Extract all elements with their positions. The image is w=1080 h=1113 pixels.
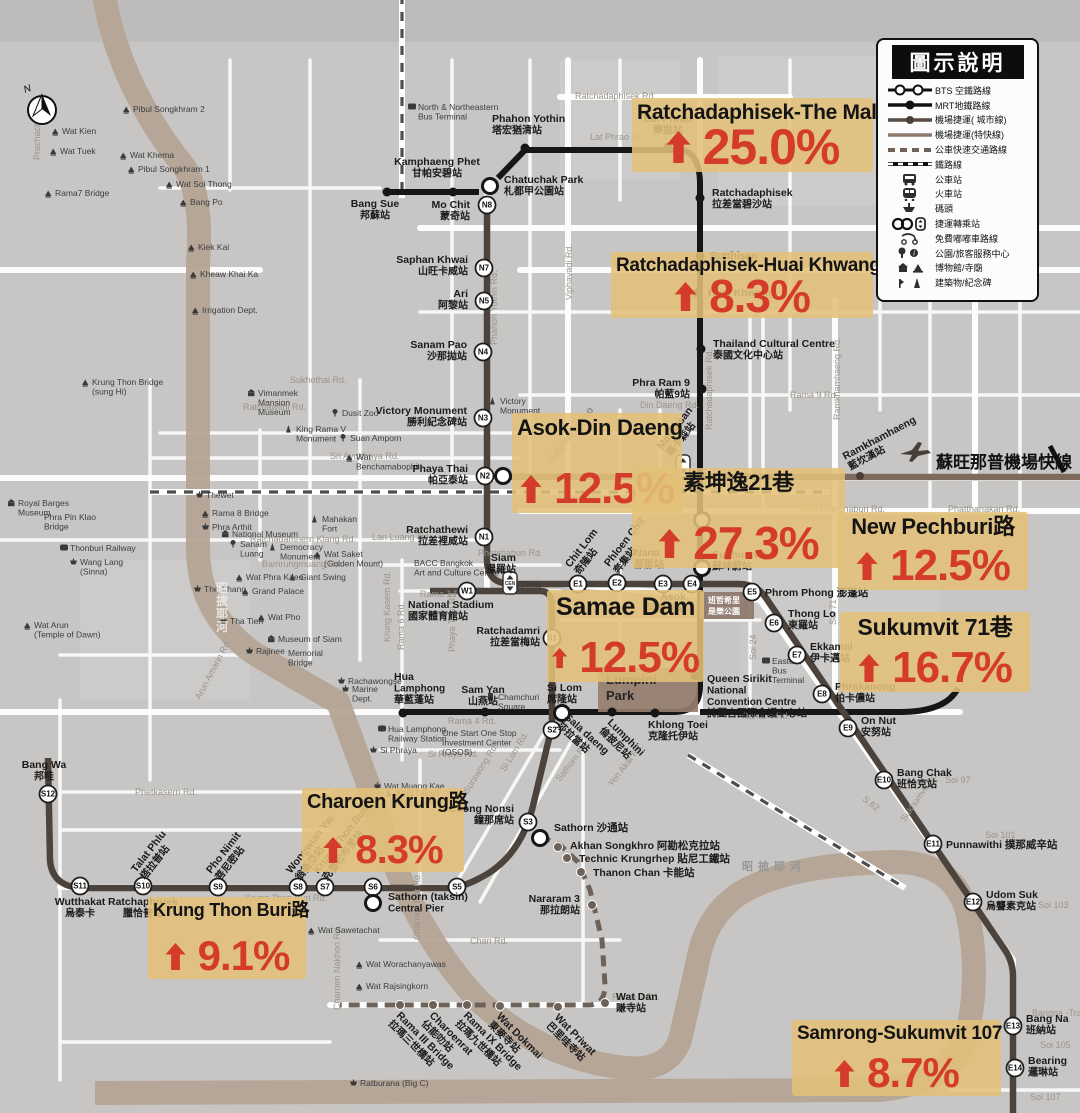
road-label: Soi 105 bbox=[1040, 1040, 1071, 1050]
svg-text:Luang: Luang bbox=[240, 549, 264, 559]
station-marker-E11: E11 bbox=[925, 836, 942, 853]
svg-text:Sukhumvit: Sukhumvit bbox=[712, 549, 766, 561]
legend-item-label: 捷運轉乘站 bbox=[935, 217, 980, 230]
station-label: Huai Khwang bbox=[708, 287, 775, 299]
bus-icon bbox=[762, 658, 770, 664]
brt-legend-icon bbox=[885, 143, 935, 157]
svg-text:鐘那席站: 鐘那席站 bbox=[474, 814, 514, 827]
svg-text:E6: E6 bbox=[769, 619, 779, 628]
station-marker-S7: S7 bbox=[317, 879, 334, 896]
station-marker-E3: E3 bbox=[655, 576, 672, 593]
svg-text:Ratchadamri: Ratchadamri bbox=[476, 625, 540, 637]
svg-text:Wat Worachanyawas: Wat Worachanyawas bbox=[366, 959, 446, 969]
svg-text:Wat Phra Kaeo: Wat Phra Kaeo bbox=[246, 572, 304, 582]
landmark: Wat Sawetachat bbox=[308, 925, 380, 935]
svg-text:Ekkamai: Ekkamai bbox=[810, 641, 853, 653]
svg-text:Huai Khwang: Huai Khwang bbox=[708, 287, 775, 299]
svg-text:N7: N7 bbox=[479, 264, 490, 273]
landmark: National Museum bbox=[222, 529, 299, 539]
road-label: Charoen Nakhon Rd. bbox=[332, 925, 342, 1010]
svg-text:Square: Square bbox=[498, 702, 526, 712]
svg-text:Wat Rajsingkorn: Wat Rajsingkorn bbox=[366, 981, 428, 991]
svg-text:Museum of Siam: Museum of Siam bbox=[278, 634, 342, 644]
legend-item-label: 建築物/紀念碑 bbox=[935, 276, 992, 289]
svg-text:班納站: 班納站 bbox=[1026, 1024, 1056, 1037]
svg-text:Rama 8 Bridge: Rama 8 Bridge bbox=[212, 508, 269, 518]
station-marker-S6: S6 bbox=[365, 879, 382, 896]
svg-text:Ratchadaphisek: Ratchadaphisek bbox=[712, 187, 793, 199]
svg-text:Punnawithi 撲那威辛站: Punnawithi 撲那威辛站 bbox=[946, 838, 1058, 851]
svg-text:Monument: Monument bbox=[296, 434, 337, 444]
svg-text:Wat Saket: Wat Saket bbox=[324, 549, 364, 559]
station-label: Thanon Chan 卡能站 bbox=[593, 866, 695, 879]
legend-item-label: MRT地鐵路線 bbox=[935, 99, 990, 112]
legend-item: 公車快速交通路線 bbox=[885, 142, 1032, 157]
legend-item: 建築物/紀念碑 bbox=[885, 275, 1032, 290]
road-label: Rama 4 Rd. bbox=[448, 716, 496, 726]
svg-text:S10: S10 bbox=[136, 882, 151, 891]
rail-legend-icon bbox=[885, 157, 935, 171]
svg-text:Kiek Kai: Kiek Kai bbox=[198, 242, 229, 252]
svg-text:Democracy: Democracy bbox=[280, 542, 324, 552]
svg-text:One Start One Stop: One Start One Stop bbox=[442, 728, 517, 738]
station-marker-E8: E8 bbox=[814, 686, 831, 703]
landmark: Grand Palace bbox=[242, 586, 304, 596]
svg-text:E5: E5 bbox=[747, 588, 757, 597]
road-label: Soi 107 bbox=[1030, 1092, 1061, 1102]
bus-legend-icon bbox=[885, 172, 935, 186]
station-marker-N3: N3 bbox=[475, 410, 492, 427]
legend-item: 機場捷運( 城市線) bbox=[885, 113, 1032, 128]
svg-text:Nararam 3: Nararam 3 bbox=[529, 893, 581, 905]
legend-item-label: 鐵路線 bbox=[935, 158, 962, 171]
airport-express-label: 蘇旺那普機場快線 bbox=[935, 452, 1072, 472]
svg-text:勝利紀念碑站: 勝利紀念碑站 bbox=[407, 416, 467, 429]
svg-text:S6: S6 bbox=[368, 883, 378, 892]
map-legend: 圖示說明 BTS 空鐵路線MRT地鐵路線機場捷運( 城市線)機場捷運(特快線)公… bbox=[876, 38, 1039, 302]
svg-text:帕亞泰站: 帕亞泰站 bbox=[428, 474, 468, 487]
svg-text:Wat Sawetachat: Wat Sawetachat bbox=[318, 925, 380, 935]
svg-text:塔宏猶清站: 塔宏猶清站 bbox=[492, 124, 542, 137]
svg-text:Thailand Cultural Centre: Thailand Cultural Centre bbox=[713, 338, 835, 350]
svg-text:Wat Tuek: Wat Tuek bbox=[60, 146, 96, 156]
svg-text:S9: S9 bbox=[213, 883, 223, 892]
svg-text:N8: N8 bbox=[482, 201, 493, 210]
legend-item: 公車站 bbox=[885, 172, 1032, 187]
legend-item-label: BTS 空鐵路線 bbox=[935, 84, 991, 97]
svg-text:Monument: Monument bbox=[396, 798, 437, 808]
station-marker bbox=[521, 144, 530, 153]
station-marker-E13: E13 bbox=[1005, 1018, 1022, 1035]
svg-text:E4: E4 bbox=[687, 580, 697, 589]
station-marker-N1: N1 bbox=[476, 529, 493, 546]
river-label: 昭 bbox=[216, 581, 228, 595]
svg-text:Khlong Toei: Khlong Toei bbox=[648, 719, 708, 731]
landmark: Wat Soi Thong bbox=[166, 179, 232, 189]
svg-text:Wat Pho: Wat Pho bbox=[268, 612, 301, 622]
svg-text:Siam: Siam bbox=[491, 552, 516, 564]
svg-text:烏泰卡: 烏泰卡 bbox=[65, 907, 95, 920]
svg-text:King Taksin: King Taksin bbox=[396, 788, 440, 798]
station-marker bbox=[429, 1001, 438, 1010]
svg-text:Lamphong: Lamphong bbox=[394, 684, 445, 695]
svg-text:Phra Ram 9: Phra Ram 9 bbox=[632, 377, 690, 389]
svg-text:札都甲公園站: 札都甲公園站 bbox=[503, 185, 564, 198]
svg-text:伊卡邁站: 伊卡邁站 bbox=[809, 652, 850, 665]
svg-text:E13: E13 bbox=[1006, 1022, 1021, 1031]
svg-text:Wat Soi Thong: Wat Soi Thong bbox=[176, 179, 232, 189]
landmark: Rama 8 Bridge bbox=[202, 508, 269, 518]
svg-text:四面佛: 四面佛 bbox=[516, 580, 542, 590]
landmark: Kheaw Khai Ka bbox=[190, 269, 258, 279]
svg-text:E10: E10 bbox=[877, 776, 892, 785]
svg-text:N3: N3 bbox=[478, 414, 489, 423]
svg-text:Si Lom: Si Lom bbox=[547, 682, 582, 694]
station-marker bbox=[563, 854, 572, 863]
svg-text:拉差裡威站: 拉差裡威站 bbox=[418, 535, 468, 548]
svg-text:(Golden Mount): (Golden Mount) bbox=[324, 559, 383, 569]
station-marker-E10: E10 bbox=[876, 772, 893, 789]
svg-text:Sathorn (taksin): Sathorn (taksin) bbox=[388, 891, 468, 903]
road-label: Viphavadi Rd. bbox=[564, 244, 574, 300]
station-marker bbox=[691, 672, 700, 681]
svg-text:暹羅站: 暹羅站 bbox=[486, 563, 516, 576]
station-marker-E2: E2 bbox=[609, 575, 626, 592]
landmark: Rama7 Bridge bbox=[45, 188, 110, 198]
station-label: Phrom Phong 澎蓬站 bbox=[765, 586, 869, 599]
park-label: 是樂公園 bbox=[707, 606, 740, 616]
svg-text:邦哇: 邦哇 bbox=[34, 770, 54, 783]
station-marker bbox=[651, 709, 660, 718]
road-label: Sukhothai Rd. bbox=[290, 375, 347, 385]
tuktuk-legend-icon bbox=[885, 231, 935, 245]
svg-text:Investment Center: Investment Center bbox=[442, 738, 512, 748]
road-label: Soi 103 bbox=[1038, 900, 1069, 910]
landmark: Ratburana (Big C) bbox=[350, 1078, 429, 1088]
svg-text:Wat Khema: Wat Khema bbox=[130, 150, 174, 160]
svg-text:Hua: Hua bbox=[394, 671, 414, 683]
svg-text:那拉朗站: 那拉朗站 bbox=[540, 904, 580, 917]
station-label: Si Lom席隆站 bbox=[547, 682, 582, 706]
svg-text:Dept.: Dept. bbox=[352, 694, 372, 704]
station-marker bbox=[676, 455, 690, 477]
station-marker bbox=[383, 188, 392, 197]
station-marker bbox=[399, 709, 408, 718]
road-label: Rama 6 Rd. bbox=[396, 602, 406, 650]
landmark: Wat Worachanyawas bbox=[356, 959, 446, 969]
svg-text:On Nut: On Nut bbox=[861, 715, 896, 727]
station-marker-S9: S9 bbox=[210, 879, 227, 896]
legend-item-label: 公車站 bbox=[935, 173, 962, 186]
station-marker bbox=[396, 1001, 405, 1010]
bangkok-transit-map-page: LumpiniPark班哲希里是樂公園 Ratchadaphisek Rd.La… bbox=[0, 0, 1080, 1113]
landmark: Suan Amporn bbox=[341, 433, 402, 443]
svg-text:CEN: CEN bbox=[505, 581, 516, 587]
legend-item: 博物館/寺廟 bbox=[885, 261, 1032, 276]
legend-item-label: 公車快速交通路線 bbox=[935, 143, 1007, 156]
station-marker-S11: S11 bbox=[72, 878, 89, 895]
svg-text:Monument: Monument bbox=[500, 406, 541, 416]
svg-text:Marine: Marine bbox=[352, 684, 378, 694]
svg-text:(Sinna): (Sinna) bbox=[80, 567, 108, 577]
svg-text:King Rama V: King Rama V bbox=[296, 424, 346, 434]
station-marker-N2: N2 bbox=[477, 468, 494, 485]
svg-text:Ratchathewi: Ratchathewi bbox=[406, 524, 468, 536]
aircity-legend-icon bbox=[885, 113, 935, 127]
svg-text:沙那拋站: 沙那拋站 bbox=[427, 350, 467, 363]
svg-text:Railway Station: Railway Station bbox=[388, 734, 447, 744]
river-label: 耶 bbox=[216, 607, 228, 621]
road-label: Phatthanakan Rd. bbox=[948, 504, 1020, 514]
svg-text:Ratburana (Big C): Ratburana (Big C) bbox=[360, 1078, 429, 1088]
station-label: Udom Suk烏聾素克站 bbox=[986, 889, 1038, 913]
svg-text:Dusit Zoo: Dusit Zoo bbox=[342, 408, 379, 418]
station-marker-S1: S1 bbox=[544, 630, 561, 647]
landmark: Thonburi Railway bbox=[60, 543, 136, 553]
svg-text:E3: E3 bbox=[658, 580, 668, 589]
svg-text:National: National bbox=[707, 686, 747, 697]
road-label: Chan Rd. bbox=[470, 936, 508, 946]
river-label: 披 bbox=[216, 593, 229, 608]
svg-text:Sanam: Sanam bbox=[240, 539, 267, 549]
svg-text:Thewet: Thewet bbox=[206, 490, 235, 500]
svg-text:華藍蓬站: 華藍蓬站 bbox=[394, 693, 434, 706]
train-legend-icon bbox=[885, 187, 935, 201]
svg-text:Royal Barges: Royal Barges bbox=[18, 498, 69, 508]
svg-text:Thonburi Railway: Thonburi Railway bbox=[70, 543, 136, 553]
svg-text:樂拋站: 樂拋站 bbox=[653, 124, 683, 137]
park-label: 班哲希里 bbox=[708, 595, 740, 605]
svg-text:Wat: Wat bbox=[356, 452, 371, 462]
svg-text:Phrom Phong 澎蓬站: Phrom Phong 澎蓬站 bbox=[765, 586, 869, 599]
svg-text:席隆站: 席隆站 bbox=[547, 693, 577, 706]
station-label: Nana那那站 bbox=[634, 547, 664, 571]
legend-item-label: 博物館/寺廟 bbox=[935, 261, 983, 274]
legend-item: 鐵路線 bbox=[885, 157, 1032, 172]
station-marker-E12: E12 bbox=[965, 894, 982, 911]
svg-text:S3: S3 bbox=[523, 818, 533, 827]
bus-icon bbox=[408, 104, 416, 110]
svg-text:Mo Chit: Mo Chit bbox=[432, 199, 471, 211]
landmark: Hua LamphongRailway Station bbox=[378, 724, 447, 744]
svg-text:Central Pier: Central Pier bbox=[388, 904, 444, 915]
svg-text:E2: E2 bbox=[612, 579, 622, 588]
legend-item-label: 碼頭 bbox=[935, 202, 953, 215]
station-marker bbox=[449, 188, 458, 197]
svg-text:國家體育館站: 國家體育館站 bbox=[408, 610, 468, 623]
svg-text:Hua Lamphong: Hua Lamphong bbox=[388, 724, 446, 734]
svg-text:N2: N2 bbox=[480, 472, 491, 481]
station-label: Punnawithi 撲那威辛站 bbox=[946, 838, 1058, 851]
station-marker bbox=[366, 896, 381, 911]
svg-text:班恰克站: 班恰克站 bbox=[897, 778, 937, 791]
landmark: Wat Rajsingkorn bbox=[356, 981, 428, 991]
svg-text:Phra Pin Klao: Phra Pin Klao bbox=[44, 512, 96, 522]
legend-title: 圖示說明 bbox=[892, 45, 1024, 79]
svg-text:Chong Nonsi: Chong Nonsi bbox=[449, 803, 514, 815]
svg-text:Suan Amporn: Suan Amporn bbox=[350, 433, 402, 443]
station-marker-E4: E4 bbox=[684, 576, 701, 593]
svg-text:Asok: Asok bbox=[660, 591, 686, 603]
svg-text:山旺卡威站: 山旺卡威站 bbox=[418, 265, 468, 278]
road-label: Krung Kasem Rd. bbox=[382, 571, 392, 642]
legend-item: MRT地鐵路線 bbox=[885, 98, 1032, 113]
legend-item-label: 火車站 bbox=[935, 187, 962, 200]
station-marker bbox=[556, 473, 564, 481]
station-marker-N5: N5 bbox=[476, 293, 493, 310]
park-label: Park bbox=[606, 688, 635, 703]
svg-text:克隆托伊站: 克隆托伊站 bbox=[648, 730, 698, 743]
svg-text:S1: S1 bbox=[547, 634, 557, 643]
svg-text:Technic Krungrhep 貼尼工鐵站: Technic Krungrhep 貼尼工鐵站 bbox=[579, 852, 730, 865]
svg-text:拉差當梅站: 拉差當梅站 bbox=[490, 636, 540, 649]
svg-text:Wang Lang: Wang Lang bbox=[80, 557, 123, 567]
svg-text:BACC Bangkok: BACC Bangkok bbox=[414, 558, 474, 568]
train-icon bbox=[60, 545, 68, 551]
svg-text:泰國文化中心站: 泰國文化中心站 bbox=[712, 349, 783, 362]
road-label: New Phetchaburi Rd. bbox=[800, 504, 885, 514]
station-marker bbox=[463, 1001, 472, 1010]
svg-text:Bus: Bus bbox=[772, 666, 787, 676]
station-label: Sathorn 沙通站 bbox=[554, 821, 629, 834]
svg-text:Wutthakat: Wutthakat bbox=[55, 896, 106, 908]
station-marker-E1: E1 bbox=[570, 576, 587, 593]
svg-text:詩麗吉國際會議中心站: 詩麗吉國際會議中心站 bbox=[707, 707, 807, 720]
svg-text:North & Northeastern: North & Northeastern bbox=[418, 102, 499, 112]
svg-text:S7: S7 bbox=[320, 883, 330, 892]
svg-text:Bang Chak: Bang Chak bbox=[897, 767, 952, 779]
svg-text:Bang Wa: Bang Wa bbox=[22, 759, 67, 771]
station-marker-S12: S12 bbox=[40, 786, 57, 803]
road-label: Soi 24 bbox=[748, 634, 758, 660]
svg-text:Wat Kien: Wat Kien bbox=[62, 126, 96, 136]
svg-text:Sutthisan: Sutthisan bbox=[710, 250, 758, 262]
svg-text:帕卡儂站: 帕卡儂站 bbox=[835, 692, 875, 705]
svg-text:東羅站: 東羅站 bbox=[788, 619, 818, 632]
station-marker bbox=[608, 708, 617, 717]
svg-text:(Temple of Dawn): (Temple of Dawn) bbox=[34, 630, 101, 640]
svg-text:拉差當碧沙站: 拉差當碧沙站 bbox=[712, 198, 772, 211]
station-marker bbox=[696, 252, 705, 261]
svg-text:邏琳站: 邏琳站 bbox=[1028, 1066, 1058, 1079]
station-marker-N7: N7 bbox=[476, 260, 493, 277]
legend-item: 碼頭 bbox=[885, 201, 1032, 216]
station-label: Technic Krungrhep 貼尼工鐵站 bbox=[579, 852, 730, 865]
svg-text:烏聾素克站: 烏聾素克站 bbox=[986, 900, 1036, 913]
svg-text:S8: S8 bbox=[293, 883, 303, 892]
svg-text:E7: E7 bbox=[792, 651, 802, 660]
svg-text:Ratchaphruek: Ratchaphruek bbox=[108, 896, 178, 908]
svg-text:Chatuchak Park: Chatuchak Park bbox=[504, 174, 584, 186]
svg-text:Grand Palace: Grand Palace bbox=[252, 586, 304, 596]
station-marker bbox=[496, 469, 511, 484]
svg-text:Giant Swing: Giant Swing bbox=[300, 572, 346, 582]
station-marker-N4: N4 bbox=[475, 344, 492, 361]
svg-text:Wat Dan: Wat Dan bbox=[616, 991, 658, 1003]
svg-text:Bus Terminal: Bus Terminal bbox=[418, 112, 467, 122]
legend-item: 捷運轉乘站 bbox=[885, 216, 1032, 231]
station-marker bbox=[697, 345, 706, 354]
svg-text:Wat Arun: Wat Arun bbox=[34, 620, 69, 630]
station-label: Akhan Songkhro 阿勘松克拉站 bbox=[570, 839, 720, 852]
svg-text:Udom Suk: Udom Suk bbox=[986, 889, 1038, 901]
station-marker bbox=[554, 1003, 563, 1012]
svg-text:National Stadium: National Stadium bbox=[408, 599, 494, 611]
station-marker-E7: E7 bbox=[789, 647, 806, 664]
svg-text:蘇坤蔚站: 蘇坤蔚站 bbox=[711, 560, 752, 573]
station-marker bbox=[496, 1002, 505, 1011]
road-label: Ratchadaphisek Rd. bbox=[575, 91, 656, 101]
river-label: 昭披耶河 bbox=[742, 859, 806, 873]
svg-text:阿黎站: 阿黎站 bbox=[438, 299, 468, 312]
svg-text:Rama7 Bridge: Rama7 Bridge bbox=[55, 188, 110, 198]
station-label: Siam暹羅站 bbox=[486, 552, 516, 576]
svg-text:E12: E12 bbox=[966, 898, 981, 907]
station-marker bbox=[856, 472, 864, 480]
bts-legend-icon bbox=[885, 83, 935, 97]
svg-text:邦蘇站: 邦蘇站 bbox=[360, 209, 390, 222]
svg-text:山燕站: 山燕站 bbox=[468, 695, 498, 708]
park-label: Lumpini bbox=[606, 672, 657, 687]
svg-text:E14: E14 bbox=[1008, 1064, 1023, 1073]
svg-text:Convention Centre: Convention Centre bbox=[707, 697, 797, 708]
landmark: Museum of Siam bbox=[268, 634, 342, 644]
svg-text:Fort: Fort bbox=[322, 524, 338, 534]
legend-item: 機場捷運(特快線) bbox=[885, 127, 1032, 142]
svg-text:Thong Lo: Thong Lo bbox=[788, 608, 836, 620]
station-marker bbox=[698, 385, 707, 394]
svg-text:E11: E11 bbox=[926, 840, 940, 849]
svg-text:Vimanmek: Vimanmek bbox=[258, 388, 299, 398]
station-marker bbox=[695, 561, 710, 576]
svg-text:阿速克站: 阿速克站 bbox=[646, 602, 686, 615]
svg-text:Sanam Pao: Sanam Pao bbox=[410, 339, 467, 351]
station-marker bbox=[577, 868, 586, 877]
station-marker-E14: E14 bbox=[1007, 1060, 1024, 1077]
svg-text:Mansion: Mansion bbox=[258, 398, 290, 408]
svg-text:Bang Sue: Bang Sue bbox=[351, 198, 400, 210]
svg-text:Akhan Songkhro 阿勘松克拉站: Akhan Songkhro 阿勘松克拉站 bbox=[570, 839, 720, 852]
svg-text:Memorial: Memorial bbox=[288, 648, 323, 658]
svg-text:Sam Yan: Sam Yan bbox=[461, 684, 505, 696]
landmark: Pibul Songkhram 2 bbox=[123, 104, 205, 114]
svg-text:Mahakan: Mahakan bbox=[322, 514, 357, 524]
svg-text:E8: E8 bbox=[817, 690, 827, 699]
legend-item: BTS 空鐵路線 bbox=[885, 83, 1032, 98]
station-marker-E9: E9 bbox=[840, 720, 857, 737]
legend-item: 火車站 bbox=[885, 187, 1032, 202]
legend-items: BTS 空鐵路線MRT地鐵路線機場捷運( 城市線)機場捷運(特快線)公車快速交通… bbox=[878, 83, 1037, 290]
svg-text:Bang Na: Bang Na bbox=[1026, 1013, 1069, 1025]
svg-text:Phrakanong: Phrakanong bbox=[835, 681, 896, 693]
svg-text:Si Phraya: Si Phraya bbox=[380, 745, 417, 755]
station-marker bbox=[588, 901, 597, 910]
svg-text:Ari: Ari bbox=[453, 288, 468, 300]
svg-text:(OSOS): (OSOS) bbox=[442, 747, 472, 757]
svg-text:安努站: 安努站 bbox=[861, 726, 891, 739]
svg-text:S12: S12 bbox=[41, 790, 56, 799]
pier-legend-icon bbox=[885, 202, 935, 216]
station-marker bbox=[664, 143, 673, 152]
svg-text:Phaya Thai: Phaya Thai bbox=[413, 463, 469, 475]
svg-text:Pibul Songkhram 2: Pibul Songkhram 2 bbox=[133, 104, 205, 114]
road-label: Phetkasern Rd. bbox=[135, 787, 197, 797]
svg-text:Pibul Songkhram 1: Pibul Songkhram 1 bbox=[138, 164, 210, 174]
svg-text:Bang Po: Bang Po bbox=[190, 197, 223, 207]
svg-text:E9: E9 bbox=[843, 724, 853, 733]
train-icon bbox=[378, 726, 386, 732]
svg-text:N5: N5 bbox=[479, 297, 490, 306]
